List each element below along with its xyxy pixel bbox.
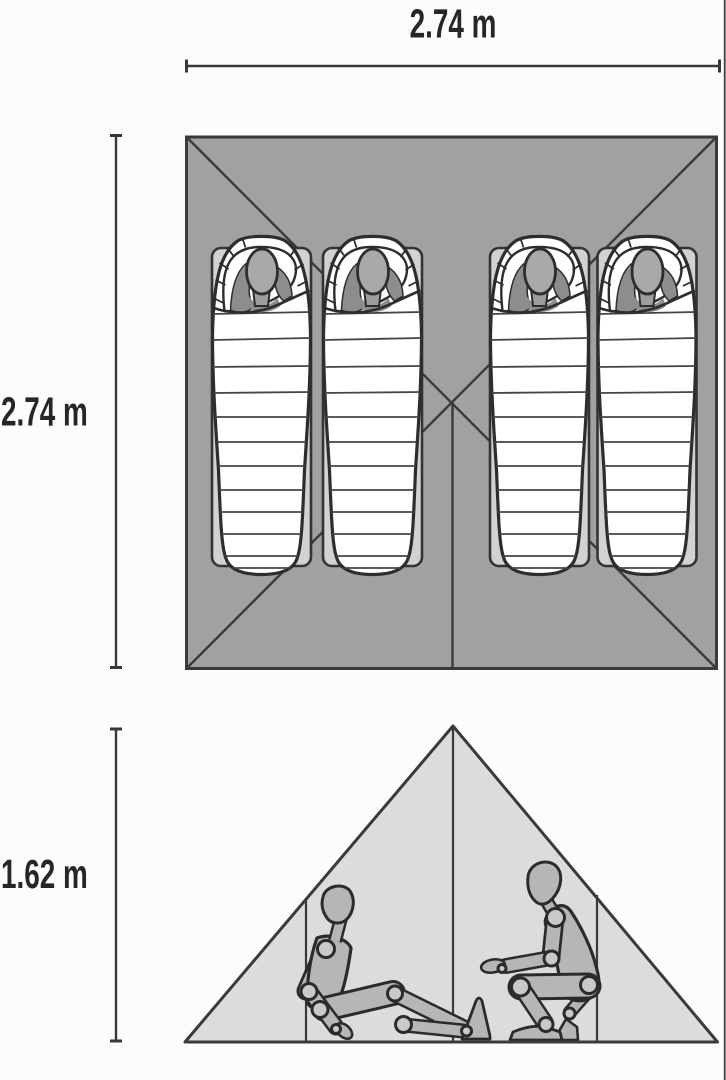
svg-text:2.74 m: 2.74 m (1, 389, 88, 435)
svg-text:1.62 m: 1.62 m (1, 852, 88, 898)
svg-text:2.74 m: 2.74 m (410, 1, 497, 47)
